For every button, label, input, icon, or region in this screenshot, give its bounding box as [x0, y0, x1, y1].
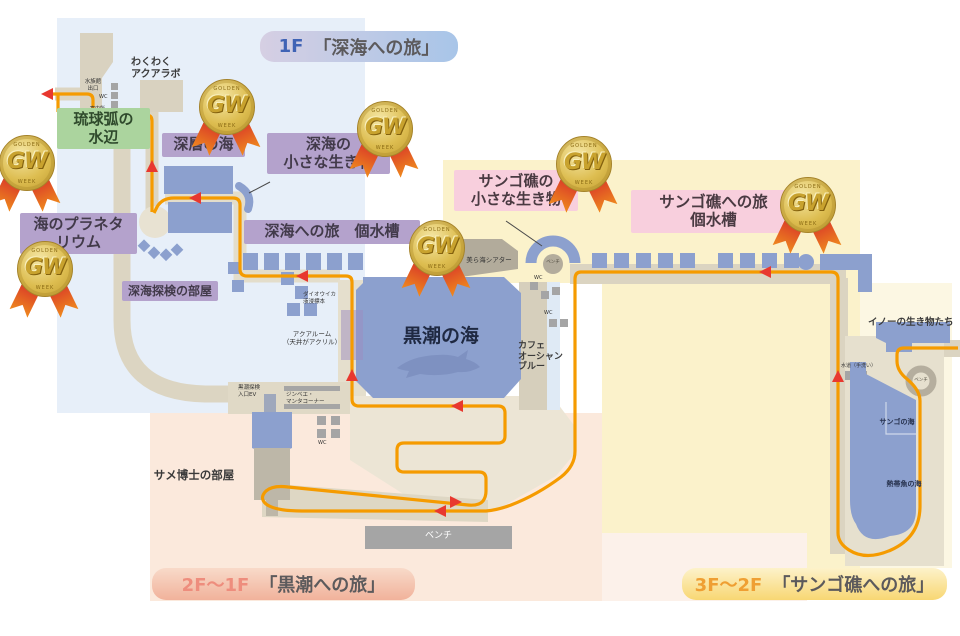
label-bench-donut: ベンチ	[909, 378, 933, 384]
title-3f-coral-journey: 3F〜2F「サンゴ礁への旅」	[682, 568, 947, 600]
gw-medal-icon: GOLDENGWWEEK	[780, 177, 836, 233]
gw-medal-icon: GOLDENGWWEEK	[357, 101, 413, 157]
medal-arc-bottom: WEEK	[410, 264, 464, 270]
label-coral-journey-tanks: サンゴ礁への旅 個水槽	[631, 190, 796, 233]
gw-medal: GOLDENGWWEEK	[775, 177, 839, 253]
medal-gw-text: GW	[410, 234, 464, 259]
gw-medal: GOLDENGWWEEK	[194, 79, 258, 155]
medal-arc-top: GOLDEN	[200, 86, 254, 92]
gw-medal-icon: GOLDENGWWEEK	[556, 136, 612, 192]
title-1f-deep-sea-journey: 1F「深海への旅」	[260, 31, 458, 62]
medal-gw-text: GW	[18, 255, 72, 280]
label-water-tap: 水道（手洗い）	[841, 363, 885, 369]
deep-layer-tank-b	[168, 202, 232, 233]
deep-layer-tank-a	[164, 166, 233, 194]
medal-arc-bottom: WEEK	[358, 145, 412, 151]
medal-arc-top: GOLDEN	[0, 142, 54, 148]
medal-arc-bottom: WEEK	[200, 123, 254, 129]
title-3f-name: 「サンゴ礁への旅」	[772, 571, 934, 597]
label-deep-sea-tanks: 深海への旅 個水槽	[244, 220, 420, 244]
gw-medal-icon: GOLDENGWWEEK	[17, 241, 73, 297]
label-wc-mid1: WC	[534, 275, 542, 281]
label-aquarium-exit: 水族館 出口	[80, 79, 106, 93]
medal-arc-bottom: WEEK	[18, 285, 72, 291]
medal-gw-text: GW	[781, 191, 835, 216]
title-3f-floor: 3F〜2F	[695, 571, 763, 597]
medal-arc-top: GOLDEN	[781, 184, 835, 190]
medal-arc-bottom: WEEK	[557, 180, 611, 186]
gw-medal: GOLDENGWWEEK	[12, 241, 76, 317]
medal-arc-bottom: WEEK	[0, 179, 54, 185]
title-1f-floor: 1F	[279, 36, 304, 57]
label-wc-1f: WC	[99, 94, 107, 100]
title-1f-name: 「深海への旅」	[313, 34, 439, 60]
label-kuroshio-sea: 黒潮の海	[398, 325, 484, 347]
label-bench-bar: ベンチ	[365, 531, 512, 542]
label-wc-mid2: WC	[544, 310, 552, 316]
gw-medal-icon: GOLDENGWWEEK	[409, 220, 465, 276]
label-giant-squid-specimen: ダイオウイカ 液浸標本	[303, 292, 349, 306]
gw-medal-icon: GOLDENGWWEEK	[199, 79, 255, 135]
label-tropical-fish-sea: 熱帯魚の海	[880, 480, 928, 488]
label-ryukyu-water-edge: 琉球弧の 水辺	[57, 108, 150, 149]
gw-medal-icon: GOLDENGWWEEK	[0, 135, 55, 191]
label-cafe-ocean-blue: カフェ オーシャン ブルー	[518, 341, 578, 373]
medal-arc-bottom: WEEK	[781, 221, 835, 227]
medal-gw-text: GW	[200, 93, 254, 118]
gw-medal: GOLDENGWWEEK	[404, 220, 468, 296]
label-bench-arc: ベンチ	[541, 260, 565, 266]
medal-arc-top: GOLDEN	[18, 248, 72, 254]
label-coral-sea: サンゴの海	[874, 418, 920, 426]
label-wc-ev: WC	[318, 440, 326, 446]
gw-medal: GOLDENGWWEEK	[0, 135, 58, 211]
label-whaleshark-manta-corner: ジンベエ・ マンタコーナー	[286, 392, 338, 406]
medal-gw-text: GW	[557, 150, 611, 175]
label-ino-creatures: イノーの生き物たち	[868, 317, 960, 328]
label-aqua-room: アクアルーム （天井がアクリル）	[277, 330, 347, 346]
gw-medal: GOLDENGWWEEK	[551, 136, 615, 212]
medal-arc-top: GOLDEN	[410, 227, 464, 233]
title-2f-kuroshio-journey: 2F〜1F「黒潮への旅」	[152, 568, 415, 600]
label-deep-sea-exploration-room: 深海探検の部屋	[122, 281, 218, 301]
label-wakuwaku-aqualab: わくわく アクアラボ	[131, 57, 195, 81]
title-2f-floor: 2F〜1F	[182, 571, 250, 597]
medal-gw-text: GW	[358, 115, 412, 140]
gw-medal: GOLDENGWWEEK	[352, 101, 416, 177]
medal-gw-text: GW	[0, 149, 54, 174]
medal-arc-top: GOLDEN	[358, 108, 412, 114]
medal-arc-top: GOLDEN	[557, 143, 611, 149]
aquarium-route-map: 1F「深海への旅」 2F〜1F「黒潮への旅」 3F〜2F「サンゴ礁への旅」 わく…	[0, 0, 960, 636]
title-2f-name: 「黒潮への旅」	[259, 571, 385, 597]
label-kuroshio-ev: 黒潮探検 入口EV	[238, 385, 274, 399]
label-shark-doctor-room: サメ博士の部屋	[138, 469, 250, 483]
